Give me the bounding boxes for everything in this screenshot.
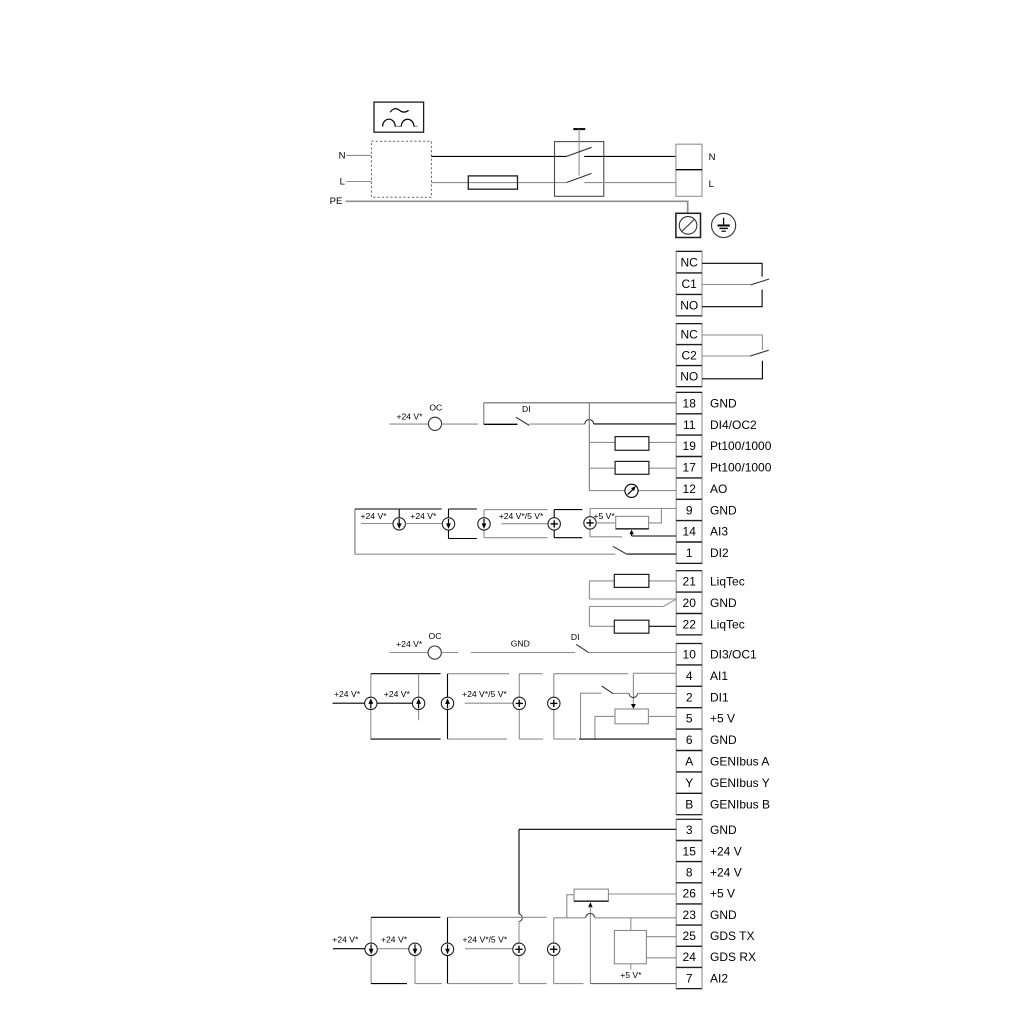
- svg-text:GENIbus B: GENIbus B: [710, 797, 770, 811]
- svg-text:17: 17: [683, 461, 697, 475]
- svg-text:AI2: AI2: [710, 971, 728, 985]
- svg-text:DI: DI: [522, 404, 531, 414]
- svg-text:+24 V*/5 V*: +24 V*/5 V*: [499, 511, 544, 521]
- svg-text:C1: C1: [682, 277, 698, 291]
- svg-text:+5 V*: +5 V*: [594, 511, 616, 521]
- svg-text:OC: OC: [429, 631, 442, 641]
- svg-text:+24 V*: +24 V*: [334, 689, 361, 699]
- svg-text:GENIbus Y: GENIbus Y: [710, 776, 770, 790]
- svg-text:LiqTec: LiqTec: [710, 618, 745, 632]
- svg-text:2: 2: [686, 690, 693, 704]
- svg-text:DI3/OC1: DI3/OC1: [710, 648, 757, 662]
- svg-text:A: A: [685, 755, 693, 769]
- svg-text:24: 24: [683, 950, 697, 964]
- svg-text:9: 9: [686, 503, 693, 517]
- svg-text:+5 V: +5 V: [710, 887, 735, 901]
- svg-text:3: 3: [686, 823, 693, 837]
- svg-text:22: 22: [683, 618, 697, 632]
- svg-text:PE: PE: [330, 196, 343, 207]
- svg-text:LiqTec: LiqTec: [710, 575, 745, 589]
- svg-text:8: 8: [686, 866, 693, 880]
- svg-text:+24 V*: +24 V*: [396, 412, 423, 422]
- svg-text:NO: NO: [680, 298, 698, 312]
- svg-text:GND: GND: [710, 733, 737, 747]
- svg-text:DI2: DI2: [710, 546, 729, 560]
- svg-text:11: 11: [683, 418, 696, 432]
- svg-text:GND: GND: [710, 823, 737, 837]
- svg-text:B: B: [685, 797, 693, 811]
- svg-text:+5 V*: +5 V*: [620, 970, 642, 980]
- svg-text:1: 1: [686, 546, 693, 560]
- svg-text:10: 10: [683, 648, 697, 662]
- svg-text:L: L: [340, 177, 345, 188]
- svg-text:AI1: AI1: [710, 669, 728, 683]
- svg-text:+24 V*: +24 V*: [410, 511, 437, 521]
- svg-text:GND: GND: [710, 396, 737, 410]
- svg-text:N: N: [709, 152, 716, 163]
- svg-text:14: 14: [683, 525, 697, 539]
- svg-text:15: 15: [683, 844, 697, 858]
- svg-text:Pt100/1000: Pt100/1000: [710, 461, 772, 475]
- svg-text:+24 V: +24 V: [710, 866, 742, 880]
- svg-text:7: 7: [686, 971, 693, 985]
- svg-text:+5 V: +5 V: [710, 712, 735, 726]
- svg-text:DI: DI: [571, 632, 580, 642]
- svg-text:DI1: DI1: [710, 690, 729, 704]
- svg-text:NO: NO: [680, 369, 698, 383]
- svg-text:GND: GND: [710, 908, 737, 922]
- svg-text:+24 V*: +24 V*: [384, 689, 411, 699]
- svg-text:6: 6: [686, 733, 693, 747]
- svg-text:23: 23: [683, 908, 697, 922]
- svg-text:N: N: [339, 150, 346, 161]
- svg-text:+24 V*/5 V*: +24 V*/5 V*: [462, 689, 507, 699]
- svg-text:+24 V: +24 V: [710, 844, 742, 858]
- svg-text:C2: C2: [682, 348, 698, 362]
- svg-text:4: 4: [686, 669, 693, 683]
- svg-text:Pt100/1000: Pt100/1000: [710, 439, 772, 453]
- svg-text:+24 V*: +24 V*: [381, 934, 408, 944]
- svg-text:GND: GND: [710, 503, 737, 517]
- svg-text:25: 25: [683, 929, 697, 943]
- svg-text:18: 18: [683, 396, 697, 410]
- svg-text:OC: OC: [429, 403, 442, 413]
- svg-text:12: 12: [683, 482, 697, 496]
- svg-text:+24 V*/5 V*: +24 V*/5 V*: [463, 934, 508, 944]
- svg-text:NC: NC: [681, 327, 699, 341]
- svg-text:GENIbus A: GENIbus A: [710, 755, 769, 769]
- svg-text:+24 V*: +24 V*: [396, 639, 423, 649]
- svg-text:GND: GND: [511, 638, 530, 648]
- svg-text:AO: AO: [710, 482, 727, 496]
- svg-text:NC: NC: [681, 255, 699, 269]
- svg-text:+24 V*: +24 V*: [361, 511, 388, 521]
- svg-text:GDS RX: GDS RX: [710, 950, 756, 964]
- svg-text:21: 21: [683, 575, 697, 589]
- svg-text:Y: Y: [685, 776, 693, 790]
- svg-text:+24 V*: +24 V*: [332, 934, 359, 944]
- svg-text:DI4/OC2: DI4/OC2: [710, 418, 757, 432]
- svg-text:19: 19: [683, 439, 697, 453]
- svg-text:5: 5: [686, 712, 693, 726]
- svg-text:20: 20: [683, 596, 697, 610]
- svg-text:AI3: AI3: [710, 525, 728, 539]
- svg-text:26: 26: [683, 887, 697, 901]
- svg-text:L: L: [709, 179, 714, 190]
- svg-text:GND: GND: [710, 596, 737, 610]
- svg-text:GDS TX: GDS TX: [710, 929, 754, 943]
